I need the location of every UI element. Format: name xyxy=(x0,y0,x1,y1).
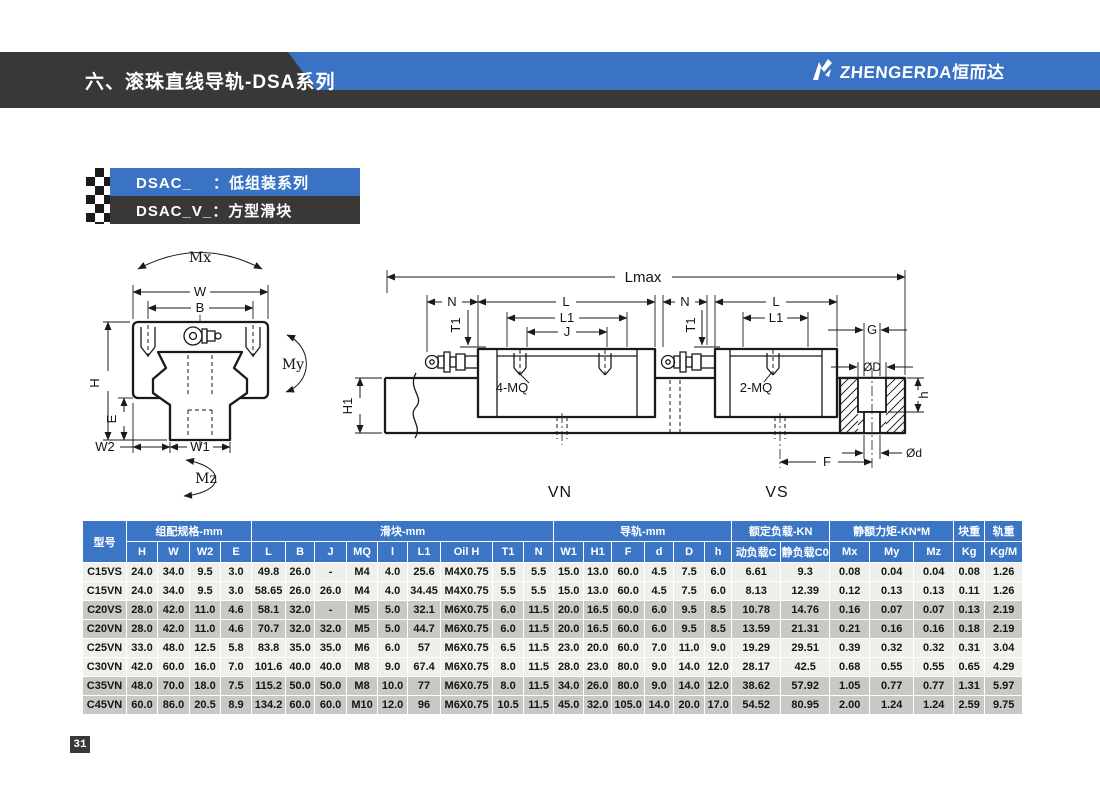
table-cell: 9.75 xyxy=(985,696,1023,715)
table-row: C15VS24.034.09.53.049.826.0-M44.025.6M4X… xyxy=(83,563,1023,582)
table-cell: 0.13 xyxy=(954,601,985,620)
table-cell: 2.59 xyxy=(954,696,985,715)
dim-label-j: J xyxy=(564,324,571,339)
table-cell: 10.0 xyxy=(378,677,408,696)
table-cell: 70.0 xyxy=(158,677,190,696)
column-header: d xyxy=(645,542,674,563)
table-cell: 0.77 xyxy=(914,677,954,696)
table-cell: 96 xyxy=(408,696,441,715)
table-cell: 9.5 xyxy=(674,601,705,620)
logo-text: ZHENGERDA恒而达 xyxy=(839,58,1005,83)
table-cell: 0.11 xyxy=(954,582,985,601)
table-cell: 80.95 xyxy=(781,696,830,715)
table-cell: 13.59 xyxy=(732,620,781,639)
table-cell: M6X0.75 xyxy=(441,696,493,715)
table-cell: - xyxy=(315,601,347,620)
table-cell: 11.5 xyxy=(524,658,554,677)
table-row: C30VN42.060.016.07.0101.640.040.0M89.067… xyxy=(83,658,1023,677)
dim-label-n-right: N xyxy=(680,294,689,309)
table-cell: 11.5 xyxy=(524,601,554,620)
table-cell: 134.2 xyxy=(252,696,286,715)
table-cell: 86.0 xyxy=(158,696,190,715)
table-cell: 6.0 xyxy=(645,620,674,639)
table-cell: 23.0 xyxy=(554,639,584,658)
table-cell: 8.9 xyxy=(221,696,252,715)
table-cell: 58.1 xyxy=(252,601,286,620)
table-cell: 83.8 xyxy=(252,639,286,658)
table-cell: 34.0 xyxy=(554,677,584,696)
table-cell: 6.5 xyxy=(493,639,524,658)
table-cell: 12.39 xyxy=(781,582,830,601)
series-label-block: DSAC_ ：低组装系列 DSAC_V_：方型滑块 xyxy=(86,168,360,224)
table-cell: 58.65 xyxy=(252,582,286,601)
dim-label-h: H xyxy=(87,378,102,387)
table-cell: 5.5 xyxy=(493,563,524,582)
table-cell: 11.0 xyxy=(674,639,705,658)
table-cell: M6X0.75 xyxy=(441,601,493,620)
table-cell: 0.32 xyxy=(914,639,954,658)
column-header: F xyxy=(612,542,645,563)
column-header: Kg/M xyxy=(985,542,1023,563)
column-header: Oil H xyxy=(441,542,493,563)
grease-nipple-left xyxy=(426,352,479,372)
table-cell: 5.0 xyxy=(378,601,408,620)
column-header: J xyxy=(315,542,347,563)
table-cell: 60.0 xyxy=(612,563,645,582)
column-header: H1 xyxy=(584,542,612,563)
column-header: H xyxy=(127,542,158,563)
rail-end-section xyxy=(840,368,905,470)
table-cell: M5 xyxy=(347,601,378,620)
table-cell: 10.5 xyxy=(493,696,524,715)
table-cell: 5.0 xyxy=(378,620,408,639)
table-cell: 5.5 xyxy=(524,582,554,601)
table-cell: 17.0 xyxy=(705,696,732,715)
table-cell: 2.19 xyxy=(985,601,1023,620)
technical-drawing: Mx W B xyxy=(50,235,1050,520)
table-cell: 42.0 xyxy=(158,601,190,620)
table-cell: 0.12 xyxy=(830,582,870,601)
table-cell: 0.21 xyxy=(830,620,870,639)
table-cell: M6X0.75 xyxy=(441,677,493,696)
model-cell: C45VN xyxy=(83,696,127,715)
table-cell: 0.16 xyxy=(914,620,954,639)
table-cell: 48.0 xyxy=(127,677,158,696)
logo-icon xyxy=(809,57,835,83)
table-cell: 9.5 xyxy=(190,582,221,601)
table-cell: 32.0 xyxy=(315,620,347,639)
table-cell: 0.39 xyxy=(830,639,870,658)
table-cell: 12.0 xyxy=(705,677,732,696)
table-cell: M8 xyxy=(347,658,378,677)
table-cell: 0.13 xyxy=(914,582,954,601)
dim-label-2mq: 2-MQ xyxy=(740,380,773,395)
table-cell: 4.6 xyxy=(221,601,252,620)
model-cell: C15VN xyxy=(83,582,127,601)
table-cell: 0.77 xyxy=(870,677,914,696)
page-number: 31 xyxy=(70,736,90,753)
table-cell: 34.45 xyxy=(408,582,441,601)
table-cell: 7.0 xyxy=(221,658,252,677)
column-header: Mz xyxy=(914,542,954,563)
table-cell: 14.76 xyxy=(781,601,830,620)
table-cell: 20.0 xyxy=(554,601,584,620)
table-cell: 1.31 xyxy=(954,677,985,696)
column-header: B xyxy=(286,542,315,563)
table-cell: 60.0 xyxy=(286,696,315,715)
table-cell: 12.0 xyxy=(378,696,408,715)
dim-label-d-big: ØD xyxy=(863,360,881,374)
table-cell: 20.0 xyxy=(674,696,705,715)
table-cell: 5.8 xyxy=(221,639,252,658)
table-cell: 9.5 xyxy=(190,563,221,582)
table-cell: 115.2 xyxy=(252,677,286,696)
dim-label-my: My xyxy=(282,357,304,373)
table-cell: 6.0 xyxy=(645,601,674,620)
table-cell: 20.5 xyxy=(190,696,221,715)
table-cell: 0.18 xyxy=(954,620,985,639)
table-cell: 1.26 xyxy=(985,563,1023,582)
table-row: C20VN28.042.011.04.670.732.032.0M55.044.… xyxy=(83,620,1023,639)
table-cell: 2.00 xyxy=(830,696,870,715)
table-cell: M6X0.75 xyxy=(441,658,493,677)
table-cell: 77 xyxy=(408,677,441,696)
model-cell: C20VS xyxy=(83,601,127,620)
table-cell: 1.05 xyxy=(830,677,870,696)
table-cell: 4.5 xyxy=(645,563,674,582)
table-cell: 16.0 xyxy=(190,658,221,677)
column-header: D xyxy=(674,542,705,563)
table-cell: 4.5 xyxy=(645,582,674,601)
cross-section-view: Mx W B xyxy=(87,250,306,496)
table-cell: 5.5 xyxy=(493,582,524,601)
table-cell: 5.97 xyxy=(985,677,1023,696)
table-cell: 60.0 xyxy=(612,582,645,601)
table-cell: 20.0 xyxy=(554,620,584,639)
column-header: T1 xyxy=(493,542,524,563)
table-cell: 11.5 xyxy=(524,639,554,658)
table-cell: 0.55 xyxy=(870,658,914,677)
table-cell: 18.0 xyxy=(190,677,221,696)
table-row: C35VN48.070.018.07.5115.250.050.0M810.07… xyxy=(83,677,1023,696)
table-cell: 0.08 xyxy=(954,563,985,582)
table-cell: 0.65 xyxy=(954,658,985,677)
table-cell: 50.0 xyxy=(286,677,315,696)
table-cell: 44.7 xyxy=(408,620,441,639)
table-cell: 54.52 xyxy=(732,696,781,715)
table-cell: 24.0 xyxy=(127,582,158,601)
table-cell: 13.0 xyxy=(584,582,612,601)
brand-logo: ZHENGERDA恒而达 xyxy=(809,57,1005,83)
table-cell: 0.16 xyxy=(830,601,870,620)
table-cell: 60.0 xyxy=(315,696,347,715)
table-cell: 0.07 xyxy=(914,601,954,620)
dim-label-t1-right: T1 xyxy=(683,317,698,332)
table-cell: - xyxy=(315,563,347,582)
table-cell: 26.0 xyxy=(315,582,347,601)
table-cell: 0.32 xyxy=(870,639,914,658)
dim-label-l-right: L xyxy=(772,294,779,309)
table-cell: 10.78 xyxy=(732,601,781,620)
table-cell: 0.13 xyxy=(870,582,914,601)
block-vs-outline xyxy=(715,349,837,417)
column-header: 静负载C0 xyxy=(781,542,830,563)
table-cell: 6.0 xyxy=(493,601,524,620)
column-header: Kg xyxy=(954,542,985,563)
table-cell: 4.6 xyxy=(221,620,252,639)
table-cell: 35.0 xyxy=(286,639,315,658)
table-cell: M4X0.75 xyxy=(441,582,493,601)
table-cell: 1.24 xyxy=(914,696,954,715)
column-header: W2 xyxy=(190,542,221,563)
table-cell: M6X0.75 xyxy=(441,620,493,639)
table-cell: 57 xyxy=(408,639,441,658)
model-cell: C15VS xyxy=(83,563,127,582)
table-cell: 11.5 xyxy=(524,696,554,715)
table-cell: 1.24 xyxy=(870,696,914,715)
rail-profile xyxy=(153,352,247,440)
page-title: 六、滚珠直线导轨-DSA系列 xyxy=(85,52,335,108)
dim-label-h-small: h xyxy=(916,391,931,398)
table-cell: 14.0 xyxy=(645,696,674,715)
table-cell: 42.0 xyxy=(127,658,158,677)
table-cell: 6.0 xyxy=(378,639,408,658)
dim-label-f: F xyxy=(823,454,831,469)
table-cell: 32.0 xyxy=(286,620,315,639)
table-cell: 32.1 xyxy=(408,601,441,620)
dim-label-h1: H1 xyxy=(340,398,355,415)
table-cell: 19.29 xyxy=(732,639,781,658)
dim-label-n-left: N xyxy=(447,294,456,309)
column-group-header: 块重 xyxy=(954,521,985,542)
table-cell: 8.0 xyxy=(493,677,524,696)
table-cell: 6.0 xyxy=(705,563,732,582)
column-header: MQ xyxy=(347,542,378,563)
table-cell: 33.0 xyxy=(127,639,158,658)
table-cell: 57.92 xyxy=(781,677,830,696)
column-header: N xyxy=(524,542,554,563)
table-cell: 9.0 xyxy=(645,658,674,677)
table-cell: 7.5 xyxy=(674,563,705,582)
table-cell: 28.17 xyxy=(732,658,781,677)
table-cell: 60.0 xyxy=(612,601,645,620)
table-cell: 60.0 xyxy=(127,696,158,715)
column-header: h xyxy=(705,542,732,563)
table-cell: 3.0 xyxy=(221,582,252,601)
table-cell: 26.0 xyxy=(286,563,315,582)
dim-label-e: E xyxy=(104,414,119,423)
table-cell: 9.0 xyxy=(705,639,732,658)
table-cell: M5 xyxy=(347,620,378,639)
table-cell: 7.0 xyxy=(645,639,674,658)
table-cell: M10 xyxy=(347,696,378,715)
table-cell: 11.0 xyxy=(190,620,221,639)
column-header: My xyxy=(870,542,914,563)
table-cell: 14.0 xyxy=(674,658,705,677)
table-cell: 15.0 xyxy=(554,563,584,582)
dim-label-mz: Mz xyxy=(195,471,217,487)
table-cell: 7.5 xyxy=(674,582,705,601)
table-cell: 0.55 xyxy=(914,658,954,677)
table-cell: 15.0 xyxy=(554,582,584,601)
table-cell: 14.0 xyxy=(674,677,705,696)
table-cell: 26.0 xyxy=(584,677,612,696)
column-group-header: 静额力矩-KN*M xyxy=(830,521,954,542)
column-header: W1 xyxy=(554,542,584,563)
table-row: C20VS28.042.011.04.658.132.0-M55.032.1M6… xyxy=(83,601,1023,620)
column-header: E xyxy=(221,542,252,563)
series-label-square-block: DSAC_V_：方型滑块 xyxy=(110,196,360,224)
table-cell: 80.0 xyxy=(612,677,645,696)
table-cell: M6X0.75 xyxy=(441,639,493,658)
table-cell: 26.0 xyxy=(286,582,315,601)
column-header: L xyxy=(252,542,286,563)
table-cell: 35.0 xyxy=(315,639,347,658)
table-cell: 3.04 xyxy=(985,639,1023,658)
table-cell: 20.0 xyxy=(584,639,612,658)
table-cell: 40.0 xyxy=(315,658,347,677)
dim-label-w2: W2 xyxy=(95,439,115,454)
table-cell: 80.0 xyxy=(612,658,645,677)
table-cell: 13.0 xyxy=(584,563,612,582)
table-cell: 8.0 xyxy=(493,658,524,677)
table-cell: 5.5 xyxy=(524,563,554,582)
table-cell: 0.31 xyxy=(954,639,985,658)
table-cell: 0.16 xyxy=(870,620,914,639)
table-cell: 24.0 xyxy=(127,563,158,582)
model-cell: C20VN xyxy=(83,620,127,639)
dim-label-w1: W1 xyxy=(190,439,210,454)
table-cell: 16.5 xyxy=(584,601,612,620)
column-group-header: 型号 xyxy=(83,521,127,563)
spec-table: 型号组配规格-mm滑块-mm导轨-mm额定负载-KN静额力矩-KN*M块重轨重H… xyxy=(82,520,1023,715)
table-cell: 70.7 xyxy=(252,620,286,639)
table-cell: 38.62 xyxy=(732,677,781,696)
catalog-page: 六、滚珠直线导轨-DSA系列 ZHENGERDA恒而达 DSAC_ ：低组装系列… xyxy=(0,0,1100,802)
column-header: Mx xyxy=(830,542,870,563)
model-cell: C30VN xyxy=(83,658,127,677)
table-cell: 60.0 xyxy=(612,639,645,658)
dim-label-b: B xyxy=(196,300,205,315)
table-cell: M6 xyxy=(347,639,378,658)
table-cell: 0.04 xyxy=(870,563,914,582)
column-group-header: 组配规格-mm xyxy=(127,521,252,542)
model-cell: C25VN xyxy=(83,639,127,658)
table-cell: 16.5 xyxy=(584,620,612,639)
checker-decoration xyxy=(86,168,110,224)
column-group-header: 轨重 xyxy=(985,521,1023,542)
header-banner: 六、滚珠直线导轨-DSA系列 ZHENGERDA恒而达 xyxy=(0,52,1100,108)
table-cell: 40.0 xyxy=(286,658,315,677)
table-cell: 11.0 xyxy=(190,601,221,620)
dim-label-t1-left: T1 xyxy=(448,317,463,332)
column-group-header: 额定负载-KN xyxy=(732,521,830,542)
table-cell: 0.08 xyxy=(830,563,870,582)
column-group-header: 导轨-mm xyxy=(554,521,732,542)
table-cell: 50.0 xyxy=(315,677,347,696)
column-header: L1 xyxy=(408,542,441,563)
table-cell: 6.0 xyxy=(705,582,732,601)
table-cell: 60.0 xyxy=(612,620,645,639)
table-cell: M4 xyxy=(347,563,378,582)
table-cell: 105.0 xyxy=(612,696,645,715)
table-cell: 3.0 xyxy=(221,563,252,582)
table-cell: 4.0 xyxy=(378,563,408,582)
table-cell: 25.6 xyxy=(408,563,441,582)
table-row: C45VN60.086.020.58.9134.260.060.0M1012.0… xyxy=(83,696,1023,715)
table-cell: M4 xyxy=(347,582,378,601)
table-cell: 8.5 xyxy=(705,601,732,620)
table-cell: 9.0 xyxy=(378,658,408,677)
dim-label-l1-left: L1 xyxy=(560,310,574,325)
table-cell: 9.5 xyxy=(674,620,705,639)
dim-label-l-left: L xyxy=(562,294,569,309)
table-cell: 28.0 xyxy=(554,658,584,677)
table-cell: 12.0 xyxy=(705,658,732,677)
dim-label-l1-right: L1 xyxy=(769,310,783,325)
grease-nipple-middle xyxy=(662,352,716,372)
table-row: C15VN24.034.09.53.058.6526.026.0M44.034.… xyxy=(83,582,1023,601)
table-cell: 29.51 xyxy=(781,639,830,658)
table-cell: 101.6 xyxy=(252,658,286,677)
table-cell: 0.07 xyxy=(870,601,914,620)
dim-label-d-small: Ød xyxy=(906,446,922,460)
table-cell: 4.29 xyxy=(985,658,1023,677)
table-cell: 8.5 xyxy=(705,620,732,639)
table-cell: 11.5 xyxy=(524,620,554,639)
table-cell: 42.0 xyxy=(158,620,190,639)
column-header: l xyxy=(378,542,408,563)
table-cell: 34.0 xyxy=(158,563,190,582)
table-cell: 4.0 xyxy=(378,582,408,601)
table-cell: 2.19 xyxy=(985,620,1023,639)
table-cell: 0.68 xyxy=(830,658,870,677)
series-label-low-assembly: DSAC_ ：低组装系列 xyxy=(110,168,360,196)
dim-label-w: W xyxy=(194,284,207,299)
table-cell: 49.8 xyxy=(252,563,286,582)
table-cell: 8.13 xyxy=(732,582,781,601)
table-cell: 28.0 xyxy=(127,601,158,620)
table-cell: 42.5 xyxy=(781,658,830,677)
table-cell: 6.0 xyxy=(493,620,524,639)
column-header: W xyxy=(158,542,190,563)
table-cell: 9.3 xyxy=(781,563,830,582)
table-row: C25VN33.048.012.55.883.835.035.0M66.057M… xyxy=(83,639,1023,658)
table-cell: 45.0 xyxy=(554,696,584,715)
table-cell: 21.31 xyxy=(781,620,830,639)
table-cell: 23.0 xyxy=(584,658,612,677)
table-cell: 12.5 xyxy=(190,639,221,658)
dim-label-g: G xyxy=(867,322,877,337)
table-cell: 6.61 xyxy=(732,563,781,582)
dim-label-lmax: Lmax xyxy=(625,269,662,286)
dim-label-mx: Mx xyxy=(189,250,211,266)
table-cell: 28.0 xyxy=(127,620,158,639)
table-cell: M4X0.75 xyxy=(441,563,493,582)
column-group-header: 滑块-mm xyxy=(252,521,554,542)
table-cell: 60.0 xyxy=(158,658,190,677)
view-caption-vn: VN xyxy=(548,484,572,501)
table-cell: 11.5 xyxy=(524,677,554,696)
column-header: 动负载C xyxy=(732,542,781,563)
dim-label-4mq: 4-MQ xyxy=(496,380,529,395)
view-caption-vs: VS xyxy=(765,484,788,501)
table-cell: 67.4 xyxy=(408,658,441,677)
table-cell: 32.0 xyxy=(584,696,612,715)
table-cell: 7.5 xyxy=(221,677,252,696)
table-cell: 9.0 xyxy=(645,677,674,696)
table-cell: M8 xyxy=(347,677,378,696)
